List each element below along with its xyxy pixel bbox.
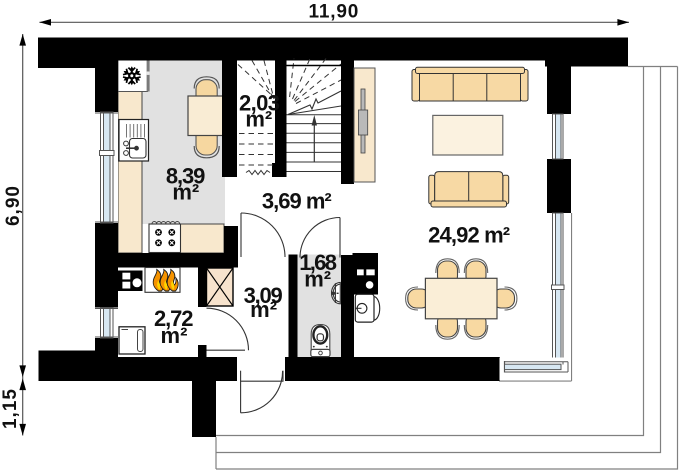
svg-text:6,90: 6,90 bbox=[3, 186, 24, 226]
svg-text:24,92 m²: 24,92 m² bbox=[428, 223, 510, 248]
svg-text:11,90: 11,90 bbox=[309, 2, 359, 23]
svg-text:m²: m² bbox=[245, 107, 272, 132]
svg-text:1,15: 1,15 bbox=[0, 389, 21, 429]
svg-text:m²: m² bbox=[250, 297, 277, 322]
svg-text:3,69 m²: 3,69 m² bbox=[262, 189, 332, 214]
svg-text:m²: m² bbox=[304, 266, 331, 291]
svg-text:m²: m² bbox=[172, 180, 199, 205]
svg-text:m²: m² bbox=[161, 323, 188, 348]
